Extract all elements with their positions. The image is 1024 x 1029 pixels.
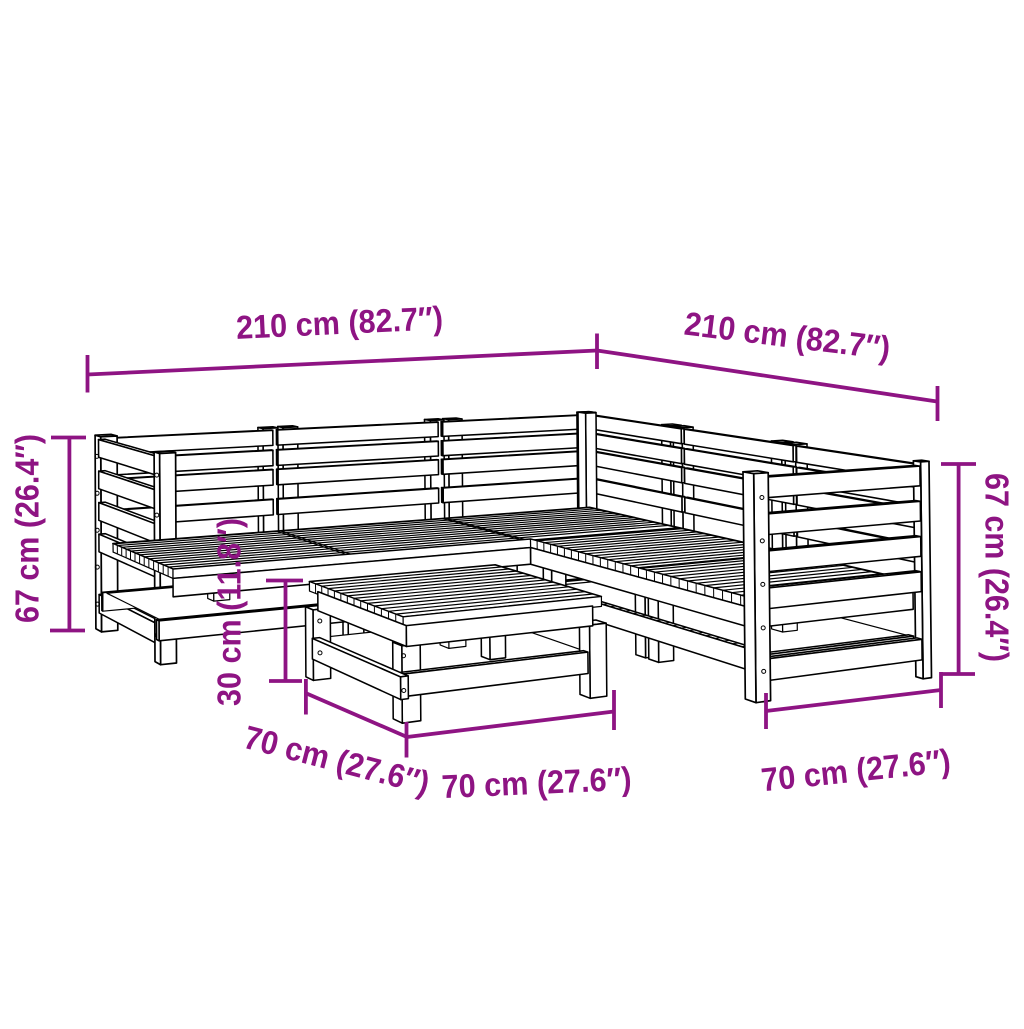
svg-text:67 cm (26.4″): 67 cm (26.4″): [9, 434, 46, 623]
svg-text:67 cm (26.4″): 67 cm (26.4″): [979, 473, 1016, 662]
svg-text:30 cm (11.8″): 30 cm (11.8″): [211, 518, 248, 706]
